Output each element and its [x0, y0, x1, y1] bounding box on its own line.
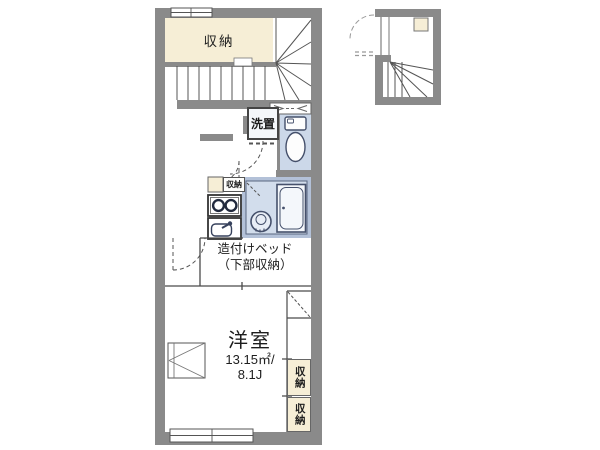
kitchen-storage-label: 収納: [223, 177, 245, 192]
right-closet-upper-label: 収納: [287, 359, 311, 396]
built-in-bed-label: 造付けベッド （下部収納）: [194, 241, 316, 274]
top-window-icon: [171, 8, 212, 17]
entry-doorway-gap: [375, 17, 383, 55]
shower-drain-icon: [251, 212, 271, 233]
bed-label-line1: 造付けベッド: [217, 241, 292, 257]
bottom-window-icon: [170, 429, 253, 442]
washroom-door-arc: [230, 141, 263, 174]
toilet-icon: [285, 117, 306, 162]
right-closet-lower-label: 収納: [287, 397, 311, 432]
entry-door-arc: [350, 15, 374, 39]
bathtub-icon: [277, 185, 306, 233]
floor-plan-canvas: 収納 洗置 収納 造付けベッド （下部収納） 洋室 13.15㎡/ 8.1J 収…: [0, 0, 600, 450]
sink-icon: [208, 218, 241, 239]
main-room-name: 洋室: [228, 324, 272, 353]
entry-interior-wall-stub: [375, 55, 391, 62]
entry-storage-box: [414, 18, 428, 31]
straight-stairs: [177, 66, 265, 100]
right-shelf-diagonal: [288, 292, 310, 317]
winder-stairs: [276, 18, 311, 100]
storage-room-label: 収納: [165, 18, 273, 62]
entry-winder-stairs: [388, 62, 433, 97]
laundry-space-label: 洗置: [248, 109, 278, 137]
kitchen-mini-storage-box: [208, 177, 223, 192]
main-room-area-sqm: 13.15㎡/: [225, 353, 274, 368]
entry-threshold-dashes: [355, 52, 375, 56]
main-room-area-jo: 8.1J: [238, 368, 263, 383]
stove-icon: [208, 195, 241, 216]
bed-label-line2: （下部収納）: [217, 257, 292, 273]
